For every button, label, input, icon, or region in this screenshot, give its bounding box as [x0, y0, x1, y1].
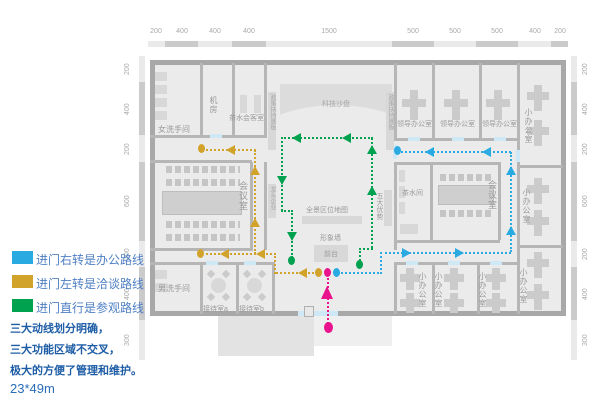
room-label-leader-1: 领导办公室	[397, 119, 432, 129]
ruler-segment	[476, 41, 518, 47]
route-visit-line	[359, 248, 373, 250]
entrance-porch	[218, 316, 314, 356]
dim-top-2: 400	[167, 28, 197, 35]
note-line-1: 三大动线划分明确，	[10, 320, 109, 336]
dim-left-3: 200	[124, 134, 131, 164]
wall	[232, 63, 235, 135]
route-nego-end-dot	[197, 249, 204, 258]
wall	[394, 162, 397, 250]
ruler-segment	[198, 41, 232, 47]
legend-swatch-visit	[12, 299, 33, 312]
chair-row	[440, 174, 492, 181]
map-wall	[302, 216, 362, 224]
ruler-segment	[139, 56, 145, 82]
door-mark	[448, 261, 460, 265]
door-mark	[244, 261, 256, 265]
chair-row	[166, 166, 240, 173]
label-front-desk: 前台	[324, 249, 338, 259]
room-label-meeting-right: 会议室	[487, 180, 496, 210]
route-office-line	[338, 272, 382, 274]
room-label-small-office-3: 小办公室	[478, 272, 487, 308]
route-visit-arrow	[277, 176, 287, 185]
wall	[264, 63, 267, 135]
dim-left-4: 600	[124, 186, 131, 216]
room-label-women-wc: 女洗手间	[158, 124, 190, 135]
conference-table	[162, 191, 242, 215]
wc-stall	[155, 98, 167, 107]
room-label-reception-a: 接待室a	[203, 304, 228, 314]
legend-swatch-office	[12, 251, 33, 264]
wall	[264, 162, 267, 250]
dim-top-10: 200	[545, 28, 575, 35]
room-label-reception-b: 接待室b	[239, 304, 264, 314]
ruler-segment	[518, 41, 551, 47]
round-table	[247, 278, 262, 293]
route-nego-arrow	[226, 145, 235, 155]
route-visit-line	[281, 137, 283, 211]
ruler-segment	[571, 135, 577, 162]
route-visit-start-dot	[356, 260, 363, 269]
conference-table	[438, 185, 494, 205]
desk	[486, 99, 510, 107]
route-visit-arrow	[367, 186, 377, 195]
dim-right-7: 300	[582, 325, 589, 355]
dim-top-8: 500	[482, 28, 512, 35]
room-label-small-office-br: 小办公室	[519, 268, 528, 304]
wc-stall	[155, 111, 167, 120]
door-mark	[206, 261, 218, 265]
dim-right-5: 200	[582, 239, 589, 269]
ruler-segment	[139, 320, 145, 360]
route-visit-arrow	[342, 133, 351, 143]
ruler-segment	[434, 41, 476, 47]
wc-stall	[155, 270, 167, 279]
sand-table	[280, 84, 392, 140]
board-label-policy-right: 政策扶持展板	[386, 94, 393, 130]
ruler-segment	[571, 267, 577, 320]
label-image-wall: 形象墙	[320, 233, 341, 243]
room-label-sand-table: 科技沙盘	[322, 99, 350, 109]
dim-top-5: 1500	[314, 28, 344, 35]
legend-label-office: 进门右转是办公路线	[36, 251, 144, 268]
room-label-small-office-2: 小办公室	[434, 272, 443, 308]
room-label-machine: 机房	[209, 96, 218, 114]
ruler-segment	[571, 56, 577, 82]
route-visit-arrow	[292, 133, 301, 143]
dim-top-3: 400	[200, 28, 230, 35]
ruler-segment	[139, 162, 145, 241]
route-office-arrow	[455, 248, 464, 258]
wall	[394, 262, 397, 314]
room-label-small-office-tr: 小办公室	[524, 108, 533, 144]
door-mark	[452, 137, 464, 141]
dim-left-7: 300	[124, 325, 131, 355]
room-label-men-wc: 男洗手间	[158, 283, 190, 294]
door-mark	[408, 137, 420, 141]
wall	[432, 63, 435, 138]
ruler-segment	[165, 41, 198, 47]
route-nego-arrow	[298, 268, 307, 278]
desk	[486, 299, 506, 307]
wall	[520, 165, 563, 168]
wall	[150, 160, 252, 163]
room-label-small-office-1: 小办公室	[418, 272, 427, 308]
ruler-segment	[139, 82, 145, 135]
route-nego-line	[276, 272, 318, 274]
board-label-leading: 龙头企业	[268, 186, 275, 210]
door-mark	[210, 134, 222, 138]
route-entrance-start-dot	[324, 322, 333, 333]
wc-stall	[155, 72, 167, 81]
wall	[396, 240, 500, 243]
wall	[396, 162, 500, 165]
door-mark	[406, 261, 418, 265]
dim-right-4: 600	[582, 186, 589, 216]
ruler-segment	[571, 162, 577, 241]
dim-right-2: 400	[582, 94, 589, 124]
room-label-leader-3: 领导办公室	[482, 119, 517, 129]
route-nego-arrow	[220, 249, 229, 259]
tea-table	[400, 224, 418, 234]
route-office-line	[398, 151, 511, 153]
route-visit-arrow	[287, 232, 297, 241]
route-office-arrow	[402, 248, 411, 258]
desk	[527, 92, 549, 100]
desk	[400, 274, 420, 282]
floor-plan-page: 200 400 400 400 1500 500 500 500 400 200…	[0, 0, 600, 400]
sofa	[240, 95, 247, 113]
route-office-line	[380, 252, 382, 274]
legend-swatch-negotiation	[12, 275, 33, 288]
desk	[527, 259, 549, 267]
board-label-policy-left: 政策扶持展板	[268, 94, 275, 130]
ruler-segment	[571, 82, 577, 135]
ruler-segment	[232, 41, 266, 47]
chair-row	[166, 221, 240, 228]
desk	[402, 99, 426, 107]
route-office-start-dot	[333, 268, 340, 277]
wall	[150, 135, 267, 138]
room-label-meeting-left: 会议室	[238, 181, 247, 211]
desk	[486, 274, 506, 282]
ruler-segment	[148, 41, 165, 47]
ruler-segment	[266, 41, 392, 47]
shelf	[399, 202, 405, 214]
route-office-arrow	[482, 147, 491, 157]
ruler-segment	[139, 135, 145, 162]
route-nego-start-dot	[315, 268, 322, 277]
desk	[444, 299, 464, 307]
wall	[430, 162, 433, 240]
dim-right-3: 200	[582, 134, 589, 164]
round-table	[211, 278, 226, 293]
route-nego-arrow	[250, 218, 260, 227]
dim-right-6: 400	[582, 279, 589, 309]
route-entrance-arrow-up	[321, 286, 333, 299]
route-office-end-dot	[394, 146, 401, 155]
room-label-tea-room: 茶水间	[402, 188, 423, 198]
wall	[498, 162, 501, 240]
dim-right-1: 200	[582, 56, 589, 82]
route-entrance-junction-dot	[324, 268, 331, 277]
entrance-door-icon	[304, 306, 314, 317]
route-nego-line	[274, 253, 276, 274]
route-visit-arrow	[367, 145, 377, 154]
route-office-arrow	[506, 226, 516, 235]
dim-top-4: 400	[234, 28, 264, 35]
route-nego-end-dot	[198, 144, 205, 153]
label-map-wall: 全景区位地图	[306, 205, 348, 215]
dim-left-1: 200	[124, 56, 131, 82]
wall	[520, 245, 563, 248]
desk	[527, 291, 549, 299]
sofa	[254, 95, 261, 113]
route-visit-end-dot	[288, 256, 295, 265]
route-office-arrow	[425, 147, 434, 157]
room-label-tea-meeting: 茶水会客室	[229, 113, 264, 123]
wc-stall	[155, 85, 167, 94]
dim-left-2: 400	[124, 94, 131, 124]
desk	[444, 99, 468, 107]
route-office-line	[380, 252, 511, 254]
door-mark	[494, 137, 506, 141]
ruler-segment	[571, 320, 577, 360]
chair-row	[166, 179, 240, 186]
wall	[200, 63, 203, 135]
route-office-arrow	[506, 166, 516, 175]
note-line-2: 三大功能区域不交叉，	[10, 341, 120, 357]
route-nego-arrow	[256, 249, 265, 259]
route-nego-arrow	[250, 166, 260, 175]
desk	[444, 274, 464, 282]
board-label-advantages: 五大优势	[376, 192, 383, 220]
ruler-segment	[551, 41, 568, 47]
ruler-segment	[571, 241, 577, 267]
shelf	[399, 170, 405, 182]
dim-top-6: 500	[398, 28, 428, 35]
wall	[250, 162, 253, 250]
display-board	[384, 190, 392, 226]
legend-label-visit: 进门直行是参观路线	[36, 299, 144, 316]
door-mark	[516, 150, 520, 162]
room-label-leader-2: 领导办公室	[440, 119, 475, 129]
ruler-segment	[392, 41, 434, 47]
plan-size-label: 23*49m	[10, 381, 55, 396]
door-mark	[490, 261, 502, 265]
room-label-small-office-mr: 小办公室	[522, 188, 531, 224]
legend-label-negotiation: 进门左转是洽谈路线	[36, 275, 144, 292]
dim-top-7: 500	[440, 28, 470, 35]
chair-row	[440, 210, 492, 217]
desk	[400, 299, 420, 307]
chair-row	[166, 234, 240, 241]
note-line-3: 极大的方便了管理和维护。	[10, 362, 142, 378]
